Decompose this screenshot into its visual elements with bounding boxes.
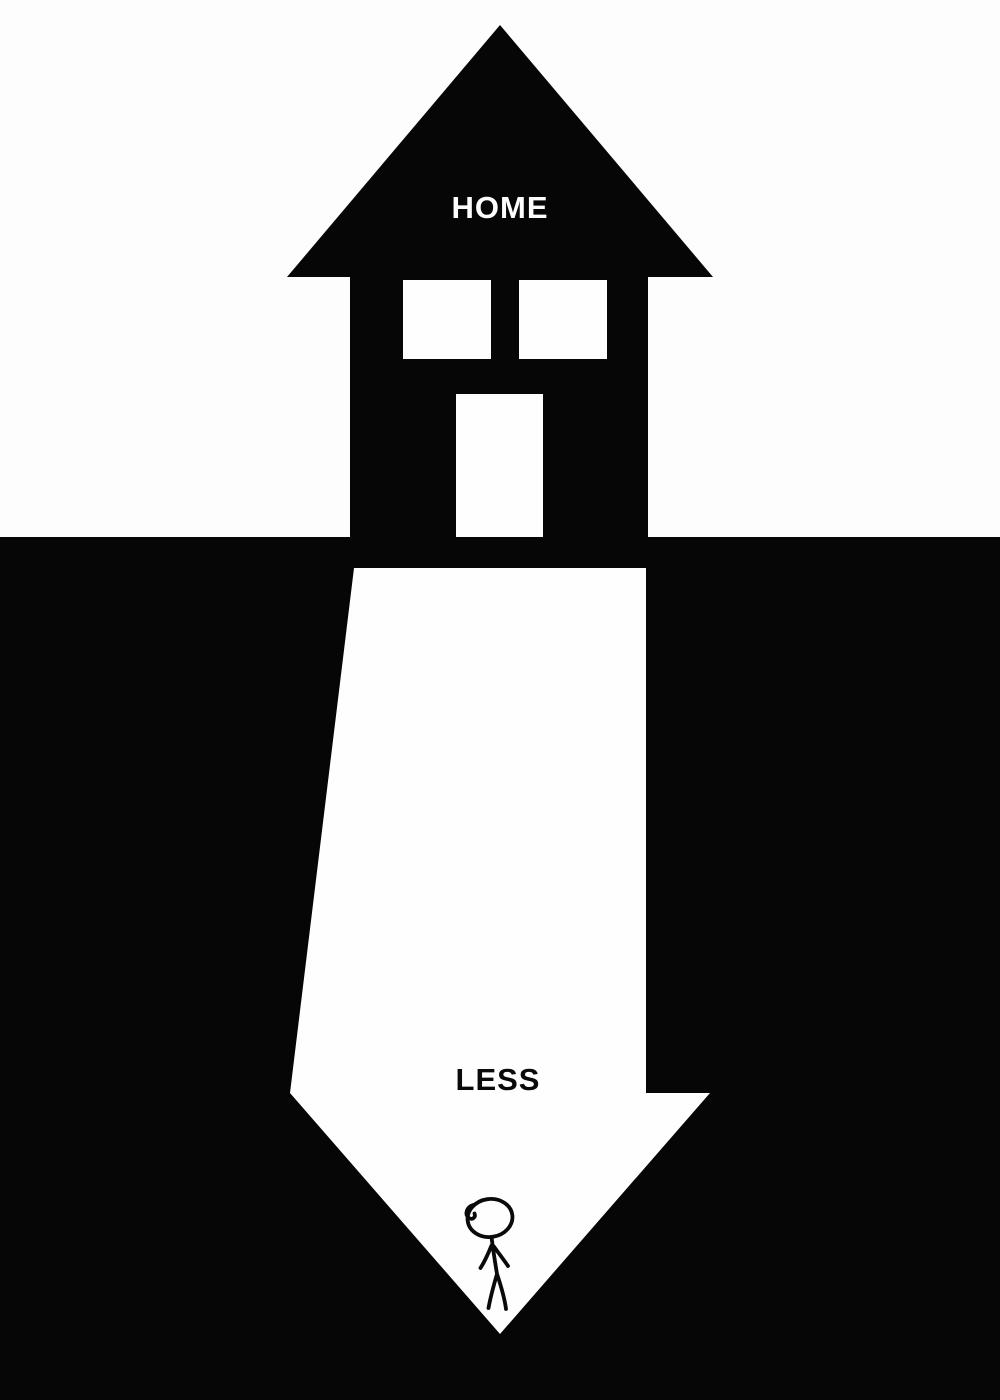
homeless-poster: HOME LESS [0,0,1000,1400]
stick-figure-icon [455,1190,525,1320]
less-label: LESS [348,1064,648,1095]
house-window-right [519,280,607,359]
house-door [456,394,543,537]
home-label: HOME [350,192,650,223]
house-window-left [403,280,491,359]
stick-figure-body-limbs [481,1237,509,1309]
